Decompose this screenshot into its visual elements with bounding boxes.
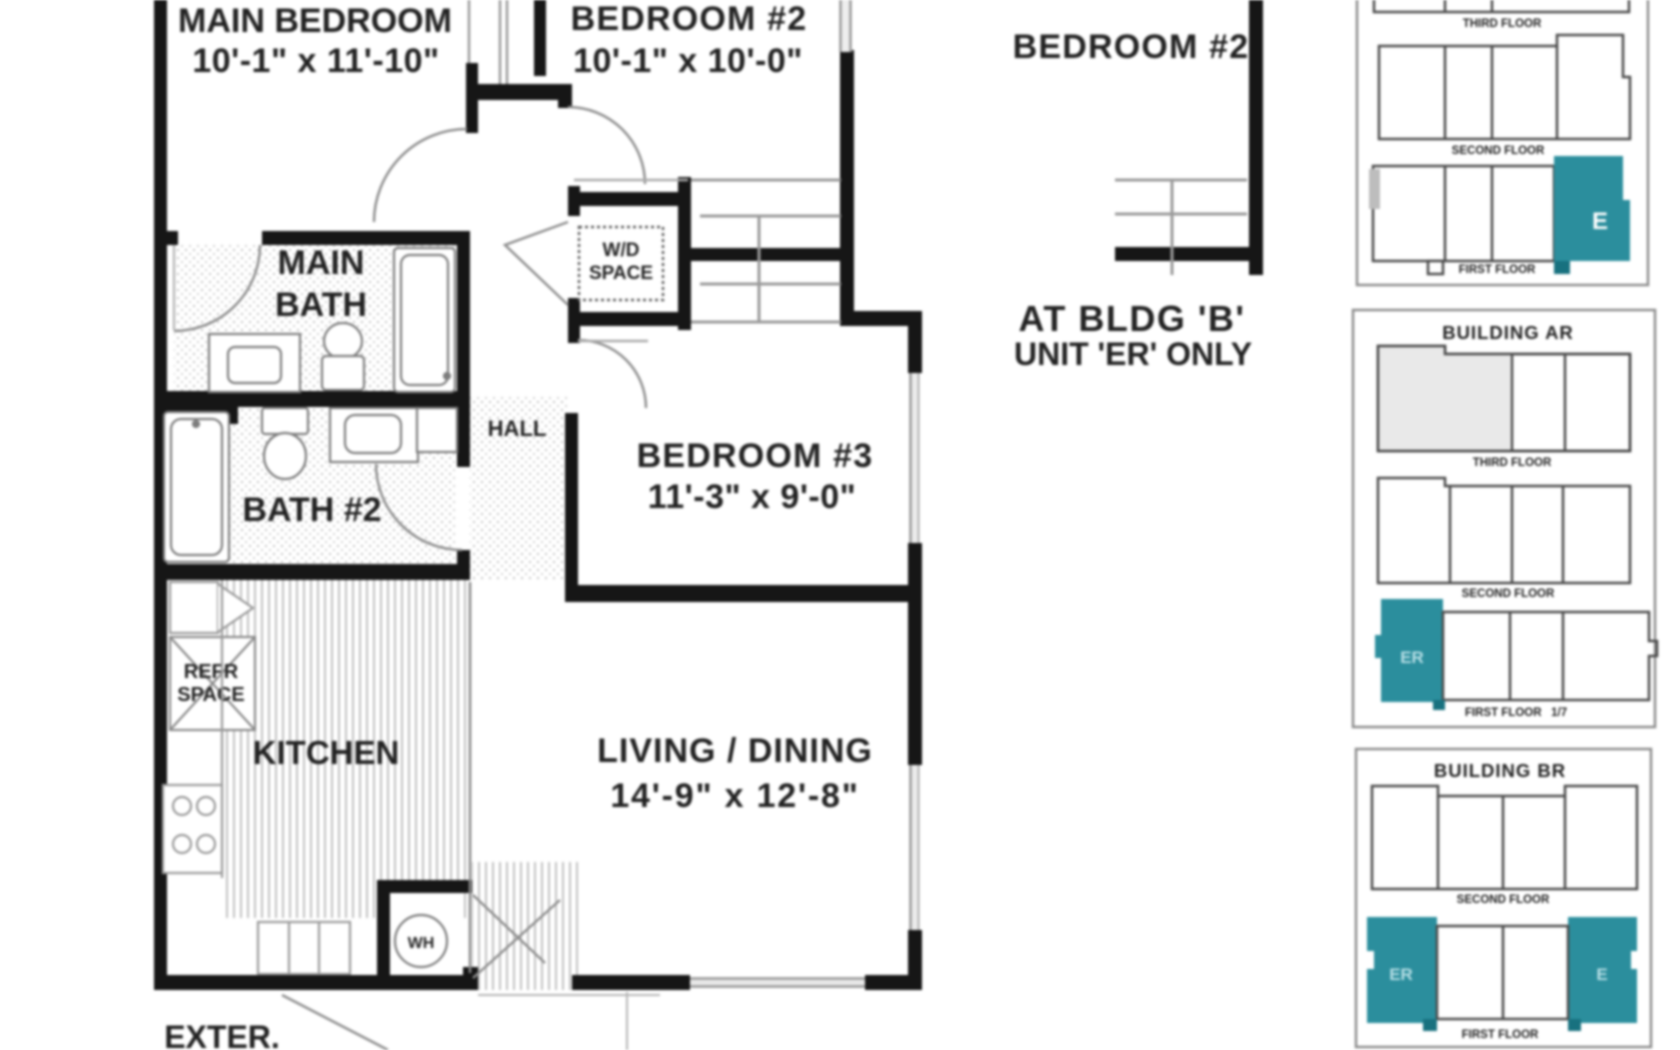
svg-text:FIRST FLOOR 1/7: FIRST FLOOR 1/7 (1465, 707, 1567, 719)
svg-text:BATH: BATH (275, 286, 367, 324)
svg-text:BEDROOM #2: BEDROOM #2 (571, 0, 808, 38)
svg-text:LIVING / DINING: LIVING / DINING (597, 732, 873, 770)
svg-text:REFR: REFR (184, 661, 239, 683)
svg-text:BEDROOM #2: BEDROOM #2 (1013, 28, 1250, 66)
svg-text:E: E (1596, 965, 1607, 984)
svg-text:BUILDING BR: BUILDING BR (1434, 760, 1566, 781)
svg-text:BUILDING AR: BUILDING AR (1442, 322, 1574, 343)
svg-text:WH: WH (408, 935, 435, 952)
svg-text:SECOND FLOOR: SECOND FLOOR (1462, 588, 1555, 600)
svg-text:AT BLDG 'B': AT BLDG 'B' (1019, 298, 1246, 339)
svg-text:FIRST FLOOR: FIRST FLOOR (1462, 1029, 1539, 1041)
svg-text:HALL: HALL (488, 416, 547, 441)
svg-text:ER: ER (1400, 648, 1424, 667)
svg-text:ER: ER (1389, 965, 1413, 984)
svg-text:W/D: W/D (603, 240, 640, 261)
svg-text:11'-3" x 9'-0": 11'-3" x 9'-0" (648, 478, 857, 516)
svg-text:MAIN BEDROOM: MAIN BEDROOM (178, 2, 452, 40)
svg-text:BEDROOM #3: BEDROOM #3 (637, 437, 874, 475)
svg-text:THIRD FLOOR: THIRD FLOOR (1463, 18, 1542, 30)
svg-text:E: E (1592, 208, 1608, 235)
svg-text:SECOND FLOOR: SECOND FLOOR (1452, 145, 1545, 157)
svg-text:BATH #2: BATH #2 (242, 491, 381, 529)
svg-text:SPACE: SPACE (177, 684, 244, 706)
svg-text:10'-1" x 11'-10": 10'-1" x 11'-10" (192, 42, 439, 80)
svg-text:KITCHEN: KITCHEN (253, 734, 400, 771)
svg-text:THIRD FLOOR: THIRD FLOOR (1473, 457, 1552, 469)
svg-text:EXTER.: EXTER. (164, 1019, 280, 1050)
svg-text:SECOND FLOOR: SECOND FLOOR (1457, 894, 1550, 906)
svg-text:MAIN: MAIN (278, 244, 365, 282)
svg-text:FIRST FLOOR: FIRST FLOOR (1459, 264, 1536, 276)
svg-text:10'-1" x 10'-0": 10'-1" x 10'-0" (573, 42, 803, 80)
svg-text:UNIT 'ER' ONLY: UNIT 'ER' ONLY (1014, 336, 1252, 372)
svg-text:SPACE: SPACE (589, 263, 653, 284)
svg-text:14'-9" x 12'-8": 14'-9" x 12'-8" (610, 777, 859, 815)
